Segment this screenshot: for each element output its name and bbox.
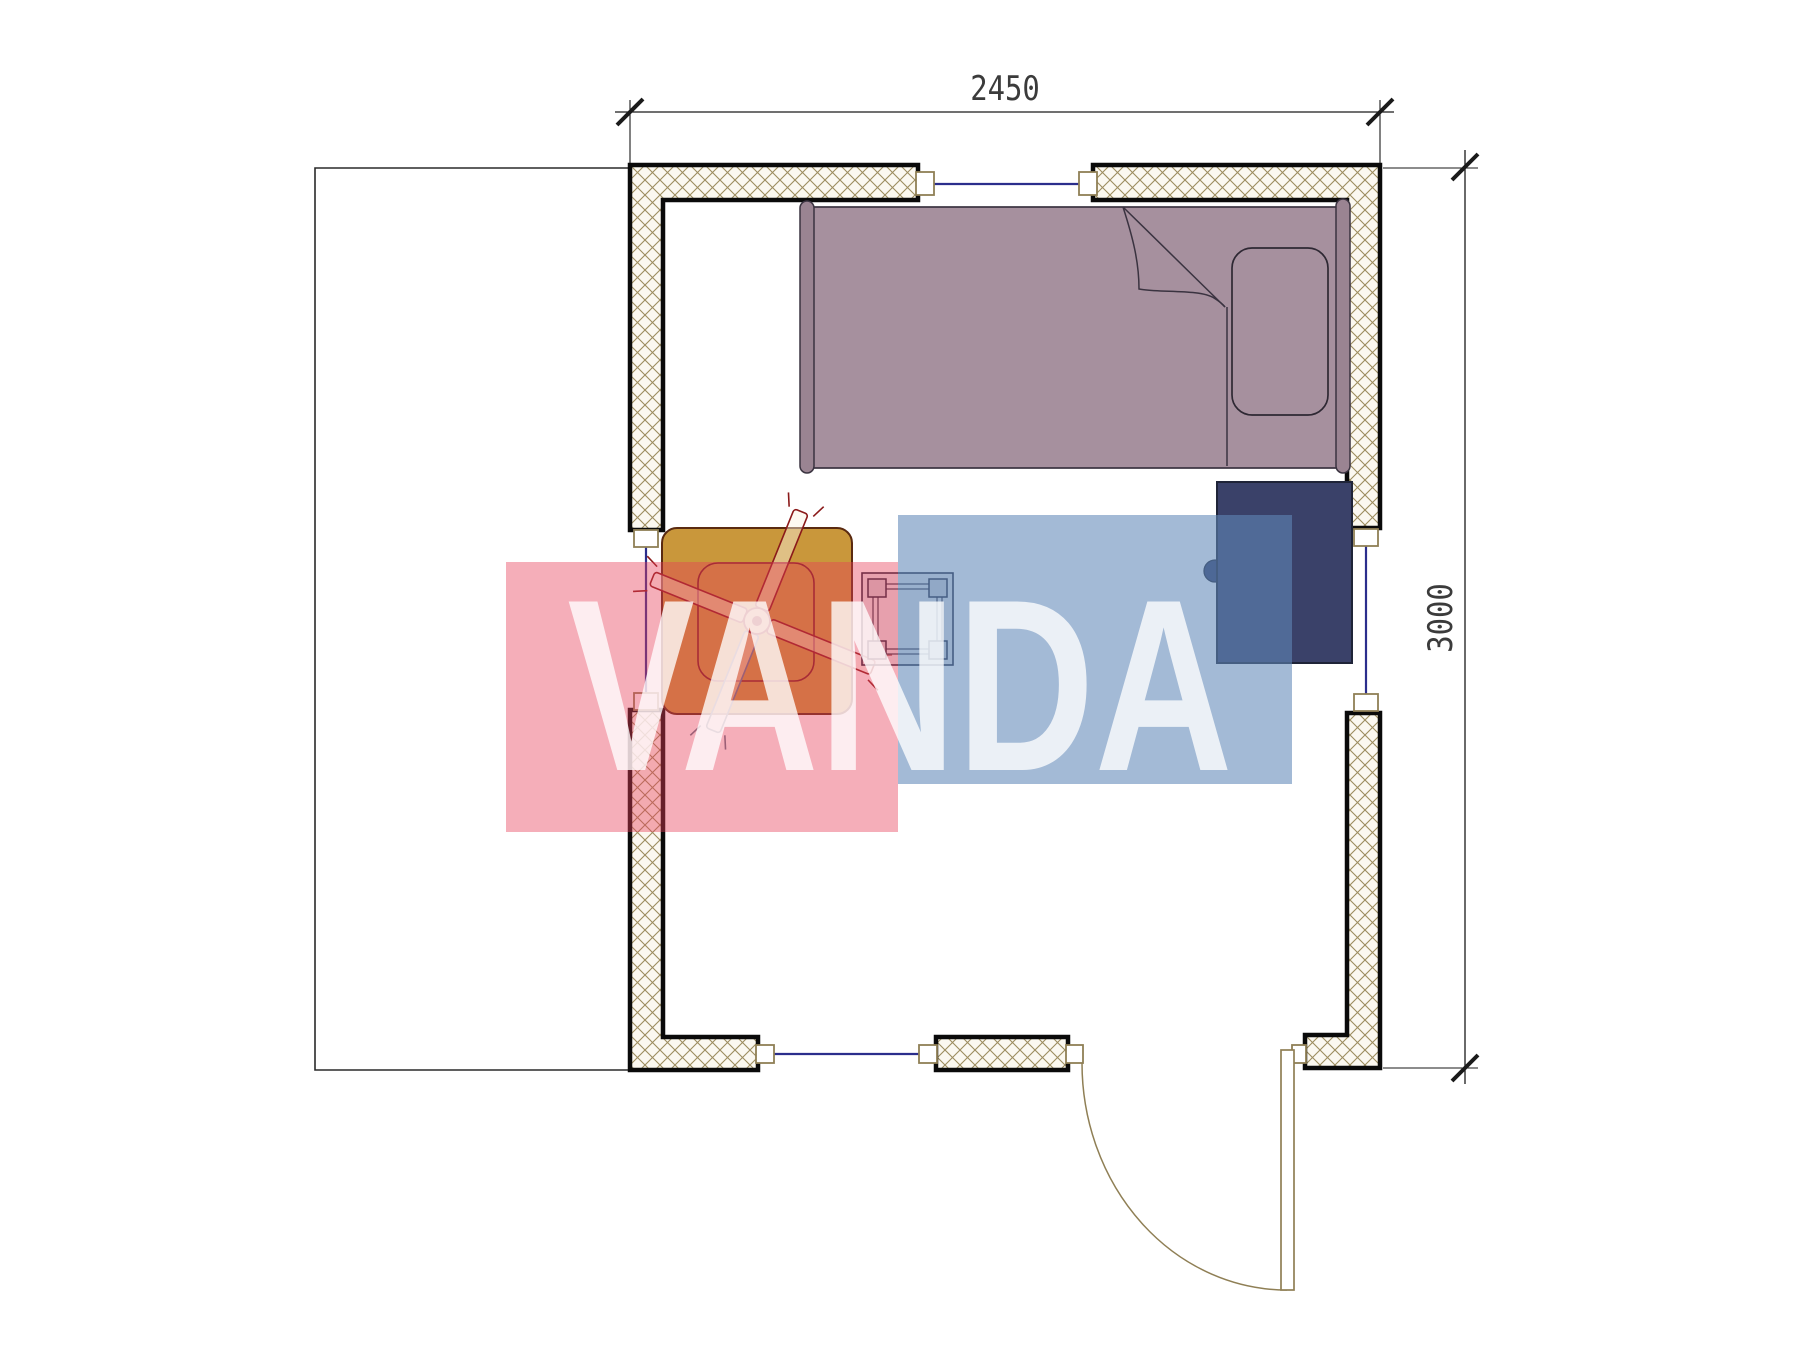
top-dimension-label: 2450 [970, 70, 1040, 109]
door [1066, 1045, 1306, 1290]
window-jamb [756, 1045, 774, 1063]
bed [800, 199, 1350, 473]
floor-plan-page: 2450 3000 [0, 0, 1800, 1350]
window-jamb [1079, 172, 1097, 195]
door-swing-arc [1082, 1063, 1287, 1290]
right-dimension-label: 3000 [1422, 583, 1461, 653]
watermark: VANDA [506, 515, 1292, 832]
window-jamb [1354, 529, 1378, 546]
wall-bottom-middle [936, 1037, 1068, 1070]
bed-headboard [1336, 199, 1350, 473]
pillow-symbol [1232, 248, 1328, 415]
window-jamb [919, 1045, 937, 1063]
floor-plan-drawing: 2450 3000 [0, 0, 1800, 1350]
wall-bottom-right-corner [1305, 713, 1380, 1068]
watermark-text: VANDA [567, 548, 1232, 822]
door-leaf [1281, 1050, 1294, 1290]
door-jamb [1066, 1045, 1083, 1063]
window-jamb [916, 172, 934, 195]
top-dimension [615, 99, 1394, 165]
window-jamb [1354, 694, 1378, 711]
bed-footboard [800, 201, 814, 473]
window-jamb [634, 530, 658, 547]
